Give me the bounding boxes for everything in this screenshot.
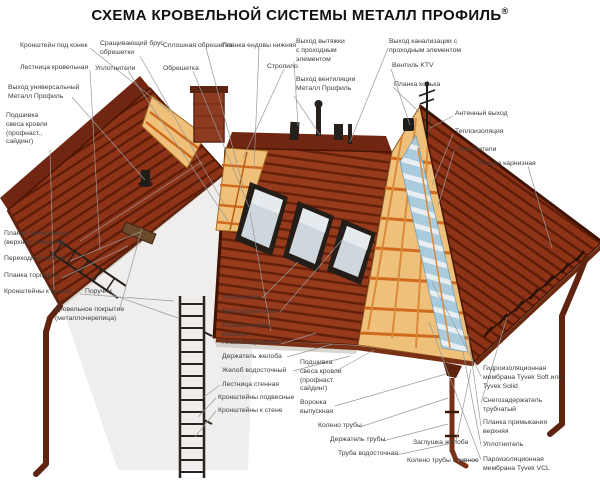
- label-drain-pipe-elbow: Колено трубы сливное: [407, 457, 479, 466]
- label-eaves-soffit-center: Подшивка свеса кровли (профнаст. сайдинг…: [300, 359, 342, 394]
- label-handrails: Поручни: [85, 288, 112, 297]
- label-gutter-end-cap: Заглушка желоба: [413, 439, 468, 448]
- diagram-page: СХЕМА КРОВЕЛЬНОЙ СИСТЕМЫ МЕТАЛЛ ПРОФИЛЬ®: [0, 0, 600, 480]
- label-ridge-plank: Планка конька: [394, 81, 440, 90]
- label-seal-center: Уплотнитель: [222, 294, 262, 303]
- label-abutment-plank-upper: Планка примыкания верхняя: [483, 419, 547, 437]
- label-roof-covering: Кровельное покрытие (металлочерепица): [55, 306, 124, 324]
- labels-layer: Кронштейн под конек Лестница кровельная …: [0, 0, 600, 480]
- label-skylight: Мансардное окно: [222, 308, 278, 317]
- label-sewer-outlet: Выход канализации с проходным элементом: [389, 38, 461, 56]
- label-gutter: Желоб водосточный: [222, 367, 286, 376]
- label-universal-outlet: Выход универсальный Металл Профиль: [8, 84, 79, 102]
- label-seal-right-lower: Уплотнитель: [483, 441, 523, 450]
- label-lathing: Обрешетка: [163, 65, 199, 74]
- label-antenna-outlet: Антенный выход: [455, 110, 508, 119]
- label-eaves-plank-right: Планка карнизная: [478, 160, 536, 169]
- label-outlet-funnel: Воронка выпускная: [300, 399, 333, 417]
- label-ventilation-outlet: Выход вентиляции Металл Профиль: [296, 76, 355, 94]
- label-eaves-soffit-left: Подшивка свеса кровли (профнаст., сайдин…: [6, 112, 48, 147]
- label-roof-ladder: Лестница кровельная: [20, 64, 88, 73]
- label-seals-top: Уплотнители: [95, 65, 135, 74]
- title-text: СХЕМА КРОВЕЛЬНОЙ СИСТЕМЫ МЕТАЛЛ ПРОФИЛЬ: [91, 7, 501, 24]
- label-pipe-elbow: Колено трубы: [318, 422, 362, 431]
- registered-mark-icon: ®: [502, 6, 509, 16]
- label-hanging-brackets: Кронштейны подвесные: [218, 394, 294, 403]
- page-title: СХЕМА КРОВЕЛЬНОЙ СИСТЕМЫ МЕТАЛЛ ПРОФИЛЬ®: [0, 6, 600, 24]
- label-thermal-insulation: Теплоизоляция: [455, 128, 504, 137]
- label-pipe-holder: Держатель трубы: [330, 436, 385, 445]
- label-abutment-plank-left: Планка примыкания (верхняя и нижняя): [4, 230, 68, 248]
- label-ktv-vent: Вентиль KTV: [392, 62, 434, 71]
- label-roof-brackets: Кронштейны к крыше: [4, 288, 72, 297]
- label-wall-ladder: Лестница стенная: [222, 381, 279, 390]
- label-waterproofing-membrane: Гидроизоляционная мембрана Tyvek Soft ил…: [483, 365, 562, 391]
- label-valley-plank-upper: Планка ендовы верхняя: [222, 322, 271, 340]
- label-wall-brackets: Кронштейны к стене: [218, 407, 282, 416]
- label-rafter: Стропило: [267, 63, 298, 72]
- label-exhaust-outlet: Выход вытяжки с проходным элементом: [296, 38, 345, 64]
- label-downpipe: Труба водосточная: [338, 450, 398, 459]
- label-walkway: Переходной мостик: [4, 255, 66, 264]
- label-seals-right: Уплотнители: [456, 146, 496, 155]
- label-vapor-membrane: Пароизоляционная мембрана Tyvek VCL: [483, 456, 550, 474]
- label-valley-plank-lower: Планка ендовы нижняя: [222, 42, 296, 51]
- label-bracket-under-ridge: Кронштейн под конек: [20, 42, 87, 51]
- label-gutter-holder: Держатель желоба: [222, 353, 282, 362]
- label-splicing-batten-bar: Сращивающий брус обрешетки: [100, 40, 164, 58]
- label-eaves-plank-center: Планка карнизная: [222, 339, 280, 348]
- label-end-plank: Планка торцевая: [4, 272, 58, 281]
- label-snow-guard: Снегозадержатель трубчатый: [483, 397, 542, 415]
